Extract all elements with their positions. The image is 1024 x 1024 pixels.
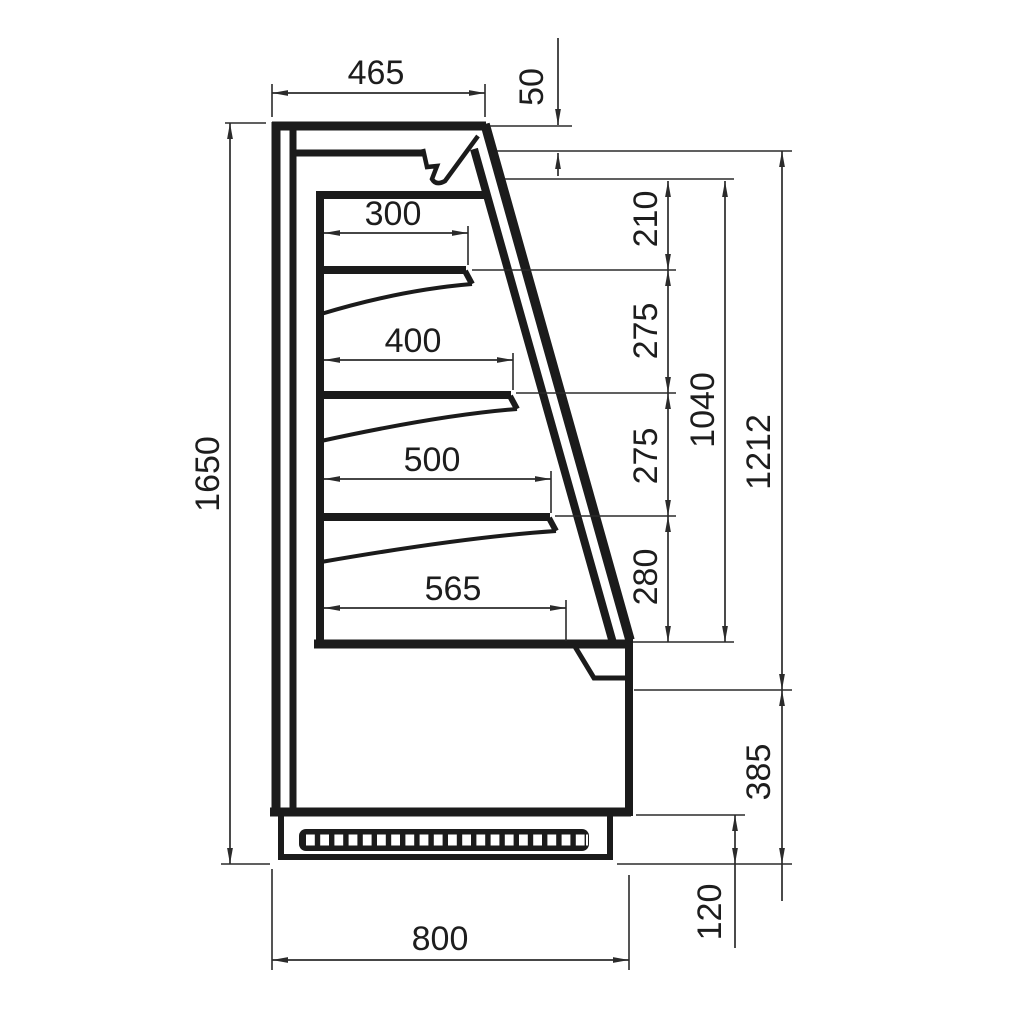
shelf-1-lip xyxy=(465,271,472,284)
dim-label-canopy-height: 50 xyxy=(513,68,551,106)
technical-drawing-page: 465 50 300 400 500 565 210 275 275 280 1… xyxy=(0,0,1024,1024)
dim-label-overall-height: 1650 xyxy=(189,436,227,512)
dim-label-plinth-height: 120 xyxy=(691,884,729,941)
dim-label-top-gap: 210 xyxy=(627,191,665,248)
shelf-1-underside xyxy=(321,284,472,314)
dim-label-opening-height: 1040 xyxy=(684,372,722,448)
shelf-1 xyxy=(316,270,472,314)
dim-label-gap-lower: 275 xyxy=(627,428,665,485)
shelf-2-underside xyxy=(321,409,517,441)
dim-label-shelf2-depth: 400 xyxy=(385,322,442,360)
dim-label-shelf3-depth: 500 xyxy=(404,441,461,479)
shelf-3 xyxy=(316,517,556,562)
dim-label-top-depth: 465 xyxy=(348,54,405,92)
dim-label-shelf1-depth: 300 xyxy=(365,195,422,233)
dim-label-front-panel-height: 385 xyxy=(740,744,778,801)
dimension-lines xyxy=(230,38,782,960)
shelf-2 xyxy=(316,395,517,441)
dim-label-bottom-shelf-depth: 565 xyxy=(425,570,482,608)
shelf-2-lip xyxy=(510,396,517,409)
canopy-lamp-profile xyxy=(423,136,478,183)
dim-label-bottom-gap: 280 xyxy=(627,549,665,606)
display-case-section-drawing: 465 50 300 400 500 565 210 275 275 280 1… xyxy=(0,0,1024,1024)
dim-label-overall-depth: 800 xyxy=(412,920,469,958)
front-nose-undercut xyxy=(574,645,629,678)
shelf-3-lip xyxy=(549,518,556,531)
front-glass-outer xyxy=(485,124,630,640)
shelf-3-underside xyxy=(321,531,556,562)
dim-label-front-height: 1212 xyxy=(740,414,778,490)
dim-label-gap-upper: 275 xyxy=(627,303,665,360)
